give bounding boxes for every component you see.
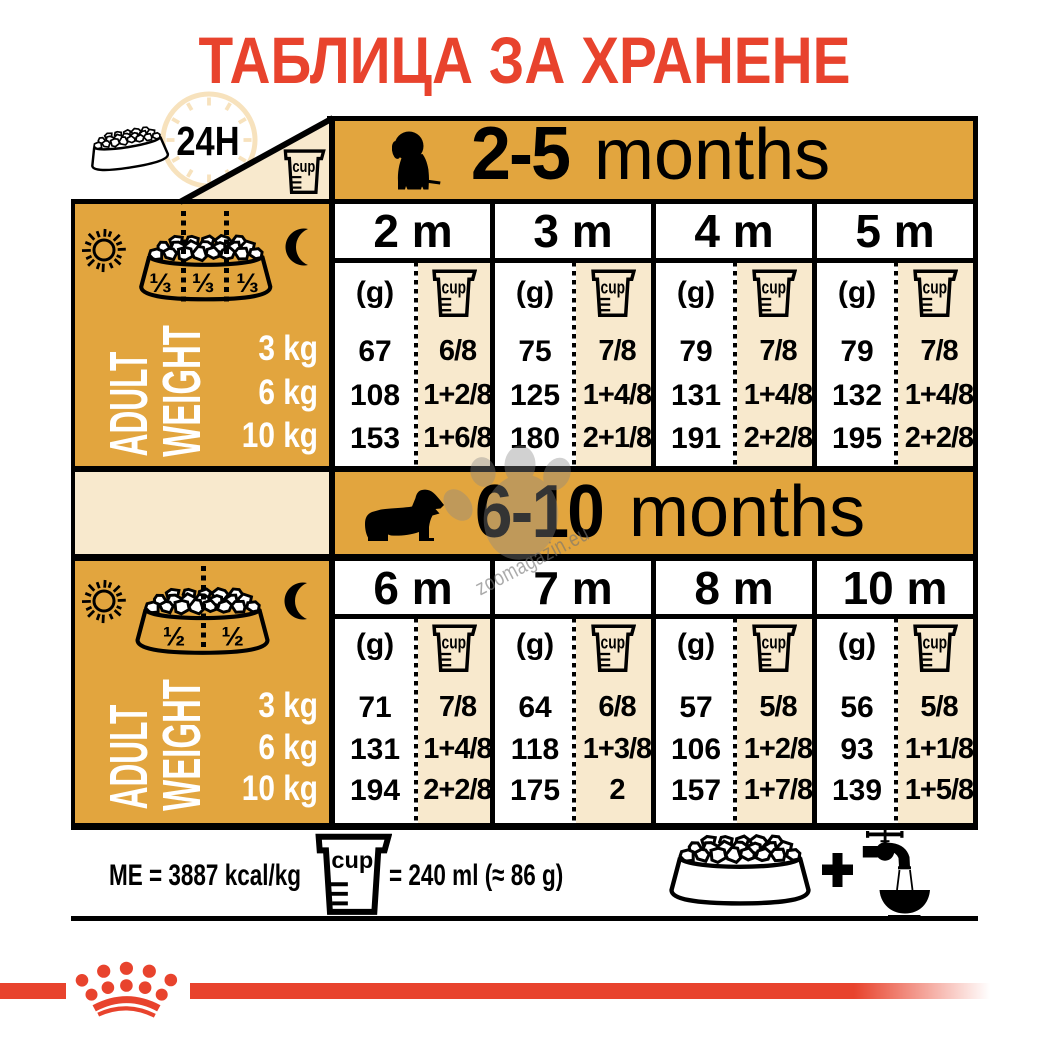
svg-text:⅓: ⅓ [191,268,213,298]
svg-text:½: ½ [221,621,244,652]
svg-text:½: ½ [163,621,186,652]
svg-text:cup: cup [441,633,466,653]
svg-text:cup: cup [331,847,373,873]
svg-text:cup: cup [923,278,948,298]
svg-text:⅓: ⅓ [149,268,171,298]
svg-text:cup: cup [923,633,948,653]
svg-text:cup: cup [292,157,315,176]
svg-text:cup: cup [762,633,787,653]
svg-text:cup: cup [762,278,787,298]
svg-text:cup: cup [441,278,466,298]
svg-text:cup: cup [601,633,626,653]
svg-text:⅓: ⅓ [236,268,258,298]
svg-text:cup: cup [601,278,626,298]
